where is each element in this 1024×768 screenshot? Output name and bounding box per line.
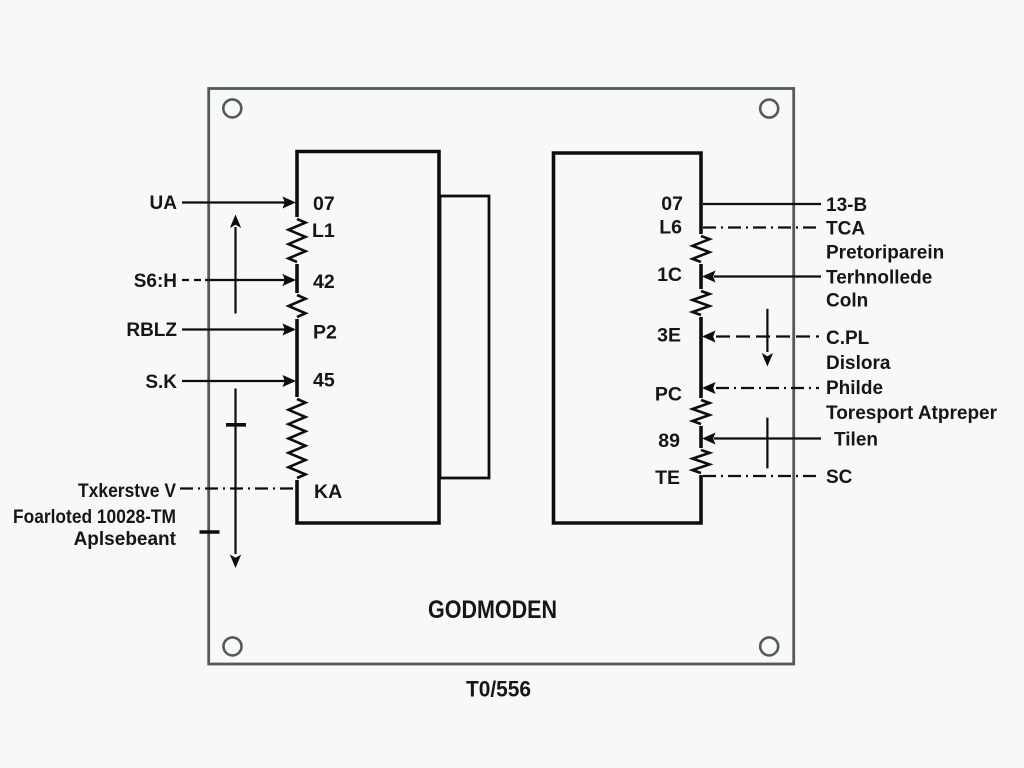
svg-text:L1: L1: [312, 220, 335, 242]
svg-text:Philde: Philde: [826, 378, 883, 399]
svg-text:S.K: S.K: [145, 372, 177, 393]
svg-text:L6: L6: [659, 217, 682, 239]
svg-text:Terhnollede: Terhnollede: [826, 268, 932, 289]
svg-text:89: 89: [658, 430, 680, 452]
svg-text:07: 07: [313, 193, 335, 215]
svg-text:Tilen: Tilen: [834, 430, 878, 451]
svg-text:Foarloted 10028-TM: Foarloted 10028-TM: [13, 507, 176, 528]
svg-text:Pretoriparein: Pretoriparein: [826, 243, 944, 264]
svg-text:KA: KA: [314, 481, 342, 503]
svg-text:C.PL: C.PL: [826, 328, 870, 349]
svg-text:SC: SC: [826, 467, 853, 488]
svg-text:Txkerstve V: Txkerstve V: [78, 481, 176, 502]
svg-text:PC: PC: [655, 384, 682, 406]
svg-text:P2: P2: [313, 322, 337, 344]
svg-text:UA: UA: [150, 193, 178, 214]
svg-text:Toresport Atpreper: Toresport Atpreper: [826, 403, 998, 424]
svg-text:TE: TE: [655, 467, 680, 489]
svg-text:RBLZ: RBLZ: [126, 320, 177, 341]
svg-text:3E: 3E: [657, 325, 681, 347]
svg-text:S6:H: S6:H: [134, 271, 177, 292]
svg-text:GODMODEN: GODMODEN: [428, 596, 557, 624]
svg-text:Dislora: Dislora: [826, 353, 891, 374]
svg-text:13-B: 13-B: [826, 195, 867, 216]
svg-text:07: 07: [661, 193, 683, 215]
svg-text:TCA: TCA: [826, 219, 865, 240]
svg-text:T0/556: T0/556: [466, 677, 531, 702]
svg-text:45: 45: [313, 370, 335, 392]
svg-text:Aplsebeant: Aplsebeant: [74, 529, 177, 550]
svg-text:1C: 1C: [657, 264, 682, 286]
svg-text:Coln: Coln: [826, 291, 868, 312]
svg-text:42: 42: [313, 271, 335, 293]
